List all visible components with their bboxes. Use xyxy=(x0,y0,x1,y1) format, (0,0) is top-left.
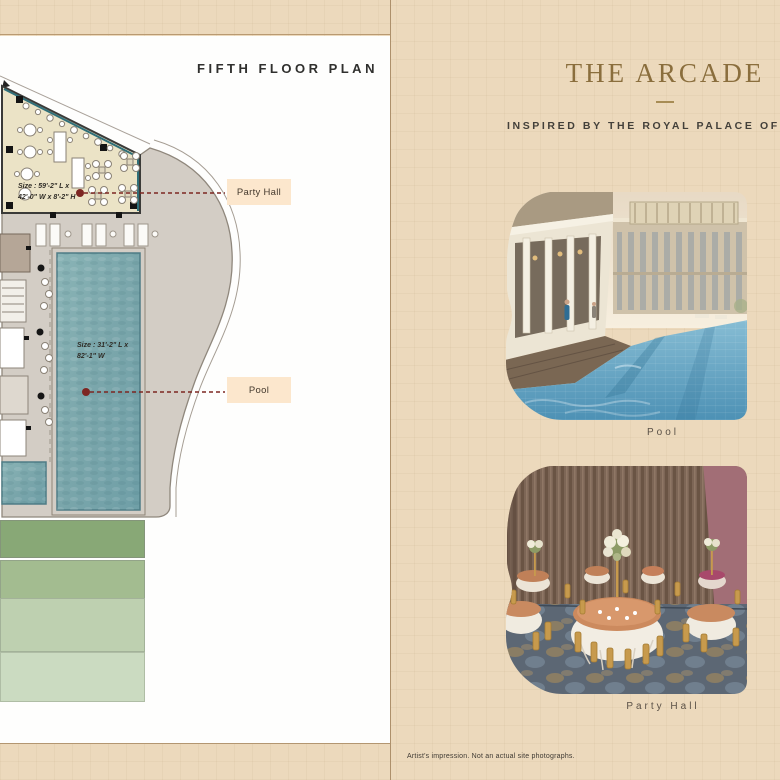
title-divider-rule xyxy=(656,101,674,103)
pool-size-line1: Size : 31'-2" L x xyxy=(77,341,128,352)
pool-photo-caption: Pool xyxy=(505,427,780,438)
left-page-bottom-rule xyxy=(0,743,390,744)
party-hall-tag: Party Hall xyxy=(227,179,291,205)
pool-size-note: Size : 31'-2" L x 82'-1" W xyxy=(77,341,128,362)
party-hall-photo-caption: Party Hall xyxy=(505,701,780,712)
left-page-top-rule xyxy=(0,34,390,35)
party-hall-size-line1: Size : 59'-2" L x xyxy=(18,182,75,193)
lawn-strip-1 xyxy=(0,520,145,558)
arcade-subtitle: INSPIRED BY THE ROYAL PALACE OF MA xyxy=(507,120,780,132)
lawn-strip-2 xyxy=(0,560,145,599)
page-divider xyxy=(390,0,391,780)
pool-photo xyxy=(505,188,748,422)
arcade-title: THE ARCADE xyxy=(505,58,780,89)
brochure-spread: { "left_page": { "title": "FIFTH FLOOR P… xyxy=(0,0,780,780)
party-hall-size-line2: 42'-0" W x 8'-2" H xyxy=(18,193,75,204)
party-hall-size-note: Size : 59'-2" L x 42'-0" W x 8'-2" H xyxy=(18,182,75,203)
disclaimer-text: Artist's impression. Not an actual site … xyxy=(407,753,575,760)
pool-size-line2: 82'-1" W xyxy=(77,352,128,363)
lawn-strip-3 xyxy=(0,598,145,652)
party-hall-photo xyxy=(505,462,748,696)
lawn-strip-4 xyxy=(0,652,145,702)
pool-tag: Pool xyxy=(227,377,291,403)
